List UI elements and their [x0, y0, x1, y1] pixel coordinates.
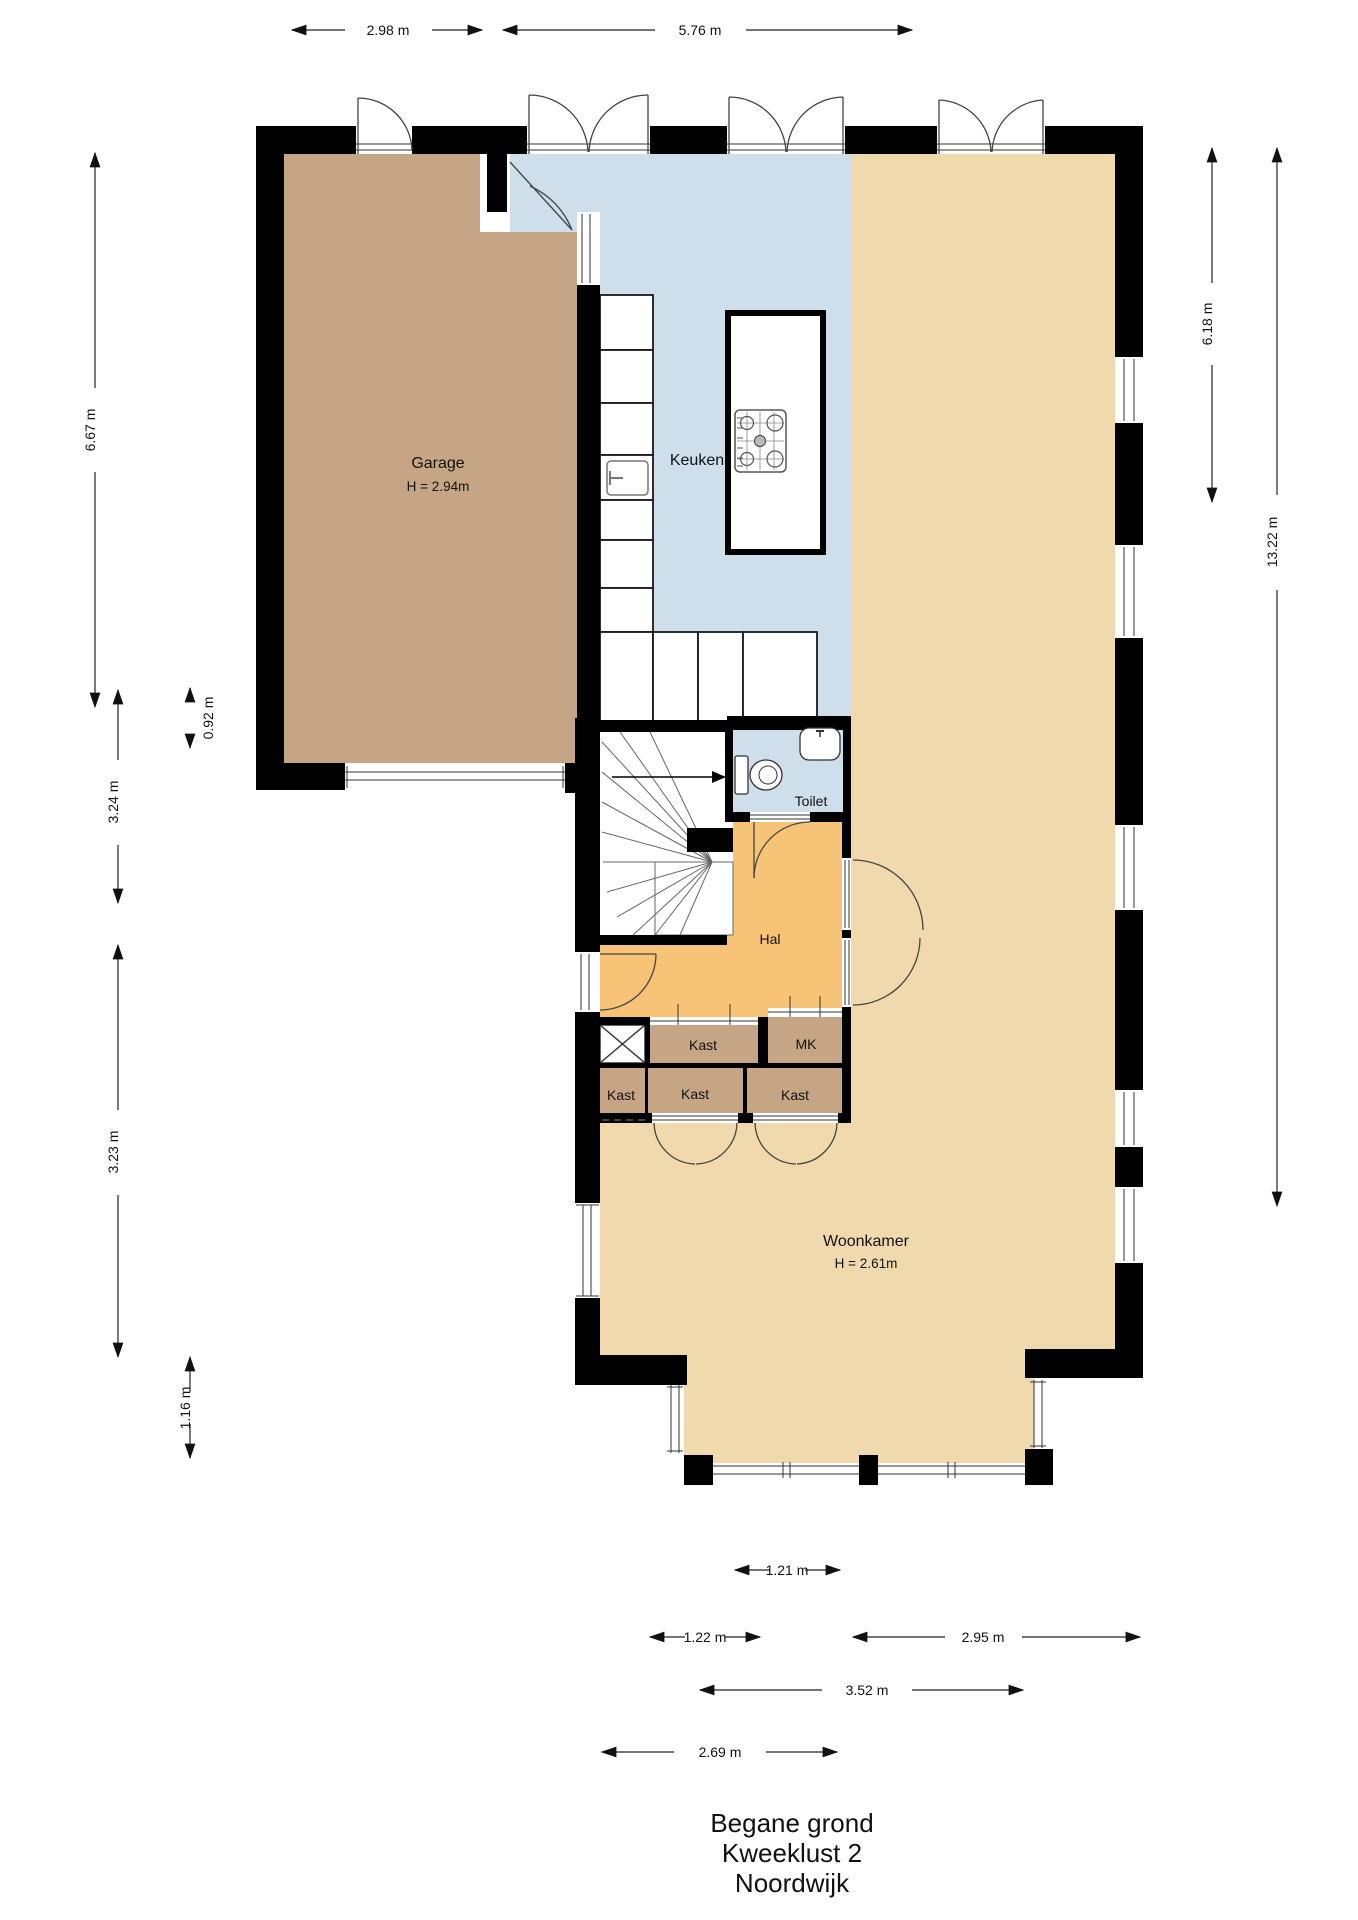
- woonkamer-height-label: H = 2.61m: [835, 1256, 898, 1271]
- kast-mid-label: Kast: [681, 1086, 709, 1102]
- woonkamer-label: Woonkamer: [823, 1233, 910, 1250]
- keuken-label: Keuken: [670, 452, 724, 469]
- toilet-sink-icon: [800, 728, 840, 760]
- title-line-1: Begane grond: [710, 1808, 873, 1838]
- woonkamer-double-door-1: [727, 97, 845, 154]
- floor-plan-canvas: Garage H = 2.94m Keuken Toilet Hal Kast …: [0, 0, 1358, 1920]
- kitchen-island: [728, 313, 823, 552]
- kast-top-label: Kast: [689, 1037, 717, 1053]
- dim-top-2: 5.76 m: [679, 22, 722, 38]
- dim-bottom-4: 3.52 m: [846, 1682, 889, 1698]
- bay-bottom-window-right: [878, 1462, 1025, 1478]
- right-wall-window-5: [1115, 1187, 1143, 1263]
- kast-left-label: Kast: [607, 1087, 635, 1103]
- kitchen-sink-icon: [607, 461, 648, 495]
- bay-bottom-window-left: [713, 1462, 859, 1478]
- floorplan-page: { "title": { "line1": "Begane grond", "l…: [0, 0, 1358, 1920]
- dim-bottom-5: 2.69 m: [699, 1744, 742, 1760]
- right-wall-window-3: [1115, 825, 1143, 910]
- dim-left-1: 6.67 m: [82, 409, 98, 452]
- dim-bottom-2: 1.22 m: [684, 1629, 727, 1645]
- garage-height-label: H = 2.94m: [407, 479, 470, 494]
- title-line-3: Noordwijk: [735, 1868, 850, 1898]
- dim-right-2: 13.22 m: [1264, 517, 1280, 568]
- woonkamer-double-door-2: [937, 100, 1045, 154]
- hal-label: Hal: [759, 931, 780, 947]
- garage-window: [345, 765, 565, 789]
- plan-title: Begane grond Kweeklust 2 Noordwijk: [710, 1808, 873, 1898]
- dim-bottom-3: 2.95 m: [962, 1629, 1005, 1645]
- dim-bottom-1: 1.21 m: [766, 1562, 809, 1578]
- room-floors: [284, 154, 1115, 1463]
- dim-left-5: 1.16 m: [177, 1387, 193, 1430]
- dim-left-3: 3.24 m: [105, 781, 121, 824]
- bay-left-window: [667, 1385, 683, 1453]
- right-wall-window-1: [1115, 357, 1143, 423]
- left-wall-window: [575, 1203, 600, 1298]
- toilet-label: Toilet: [795, 793, 828, 809]
- dim-left-4: 3.23 m: [105, 1131, 121, 1174]
- kast-right-label: Kast: [781, 1087, 809, 1103]
- right-wall-window-4: [1115, 1090, 1143, 1147]
- mk-label: MK: [796, 1036, 818, 1052]
- keuken-double-door: [527, 95, 650, 154]
- dim-right-1: 6.18 m: [1199, 303, 1215, 346]
- title-line-2: Kweeklust 2: [722, 1838, 862, 1868]
- stove-icon: [735, 410, 786, 472]
- right-wall-window-2: [1115, 545, 1143, 638]
- garage-exterior-door: [356, 98, 412, 154]
- garage-label: Garage: [411, 455, 464, 472]
- dim-left-2: 0.92 m: [200, 697, 216, 740]
- dim-top-1: 2.98 m: [367, 22, 410, 38]
